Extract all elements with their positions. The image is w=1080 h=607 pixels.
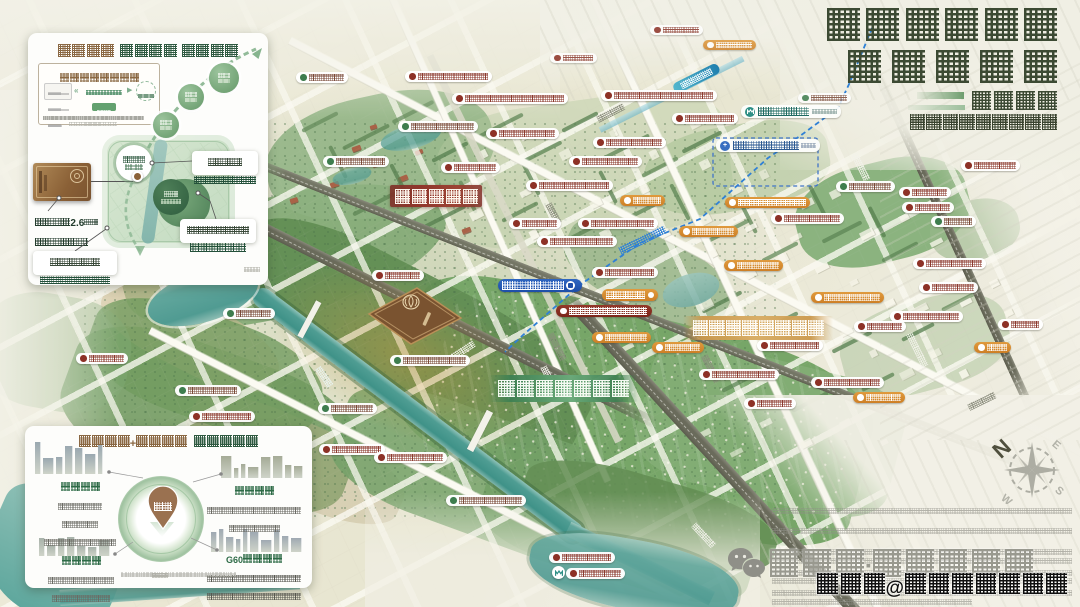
svg-text:W: W bbox=[999, 492, 1015, 504]
svg-text:E: E bbox=[1050, 438, 1063, 452]
svg-text:S: S bbox=[1053, 484, 1065, 498]
